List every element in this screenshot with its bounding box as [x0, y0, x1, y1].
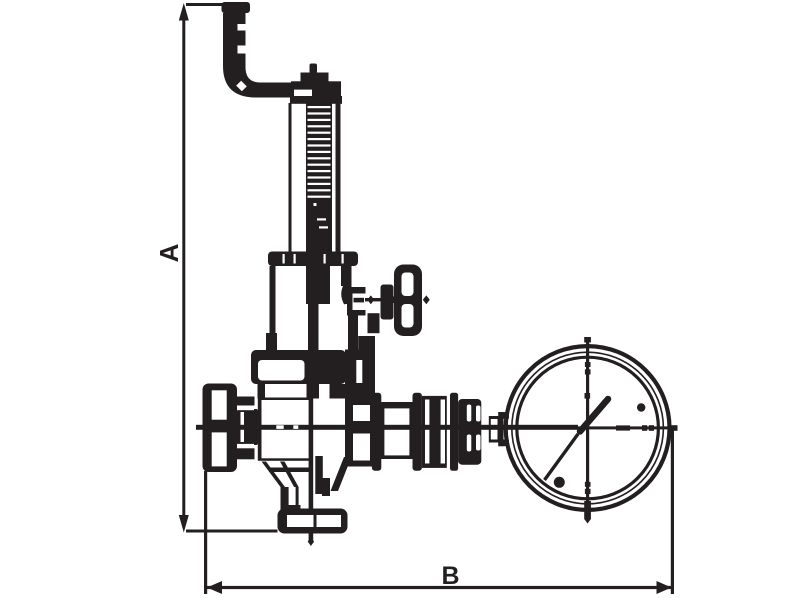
svg-text:B: B — [441, 562, 459, 590]
svg-text:A: A — [154, 243, 184, 262]
